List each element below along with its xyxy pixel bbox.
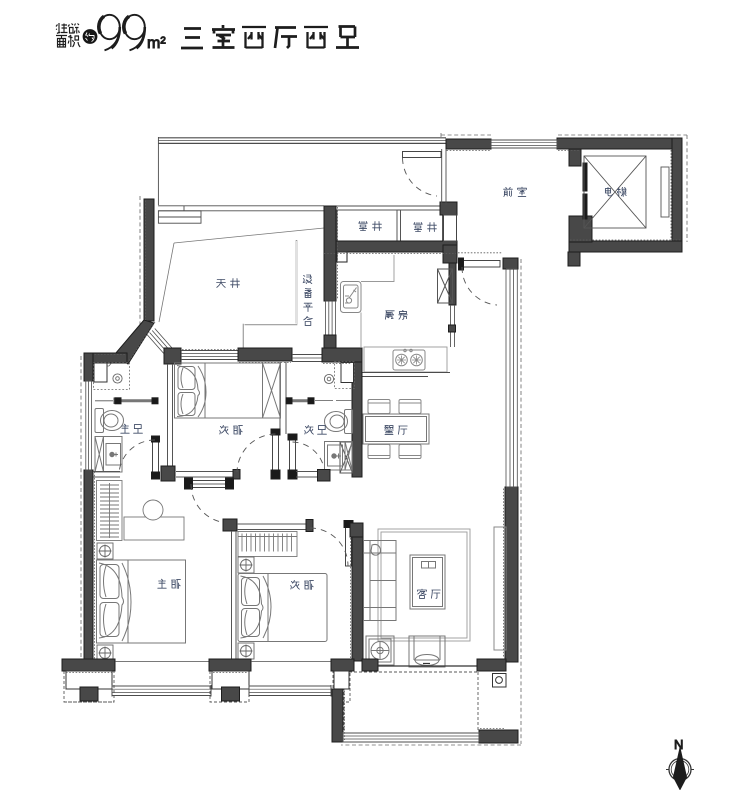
svg-text:m²: m² [147,35,166,52]
svg-text:N: N [674,737,683,752]
